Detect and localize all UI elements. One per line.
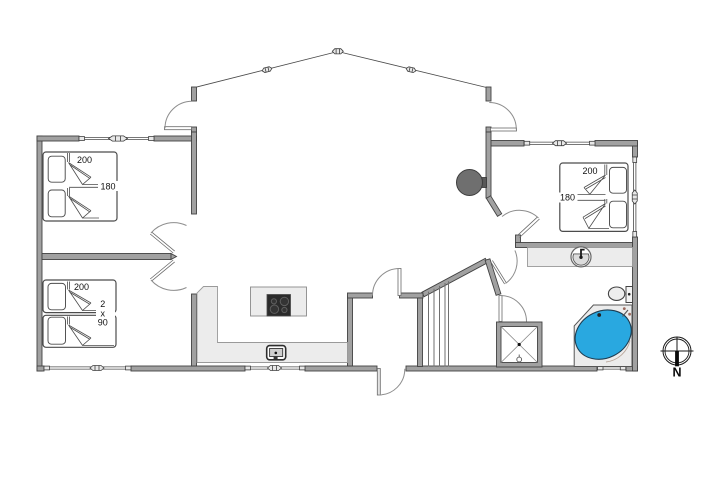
svg-text:90: 90	[98, 318, 108, 328]
svg-text:200: 200	[582, 166, 597, 176]
svg-text:200: 200	[74, 282, 89, 292]
svg-text:180: 180	[560, 193, 575, 203]
svg-text:180: 180	[100, 181, 115, 191]
svg-text:200: 200	[77, 155, 92, 165]
svg-text:N: N	[672, 366, 681, 380]
